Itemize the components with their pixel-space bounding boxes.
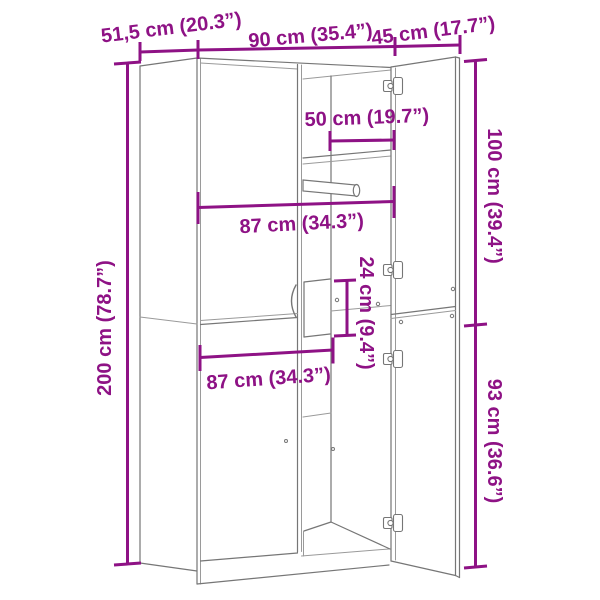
lower-shelf-edge	[303, 413, 331, 417]
dim-line-niche-height	[334, 280, 356, 336]
diagram-svg: 51,5 cm (20.3”) 90 cm (35.4”) 45 cm (17.…	[0, 0, 600, 600]
hinge-icon	[384, 351, 403, 368]
plinth-bottom-edge	[197, 565, 389, 584]
dimension-lines	[114, 35, 487, 568]
hinge-icon	[384, 262, 403, 279]
dim-label-rail-depth: 50 cm (19.7”)	[304, 105, 429, 131]
dim-label-upper-height: 100 cm (39.4”)	[483, 128, 505, 264]
dim-label-interior-width-upper: 87 cm (34.3”)	[239, 210, 364, 238]
dim-label-lower-height: 93 cm (36.6”)	[483, 379, 505, 504]
door-handle	[292, 285, 297, 317]
interior-top-edge	[303, 70, 391, 79]
right-doors-open	[391, 57, 460, 578]
top-gap-line	[201, 63, 298, 69]
dim-label-interior-width-lower: 87 cm (34.3”)	[206, 364, 332, 395]
dim-label-door-width: 45 cm (17.7”)	[370, 13, 496, 50]
wardrobe-dimension-diagram: 51,5 cm (20.3”) 90 cm (35.4”) 45 cm (17.…	[0, 0, 600, 600]
middle-niche	[304, 279, 330, 337]
plinth-top-edge	[302, 549, 390, 556]
top-shelf	[303, 150, 391, 164]
dim-line-rail-depth	[330, 130, 394, 151]
top-edge	[197, 58, 391, 68]
dim-line-total-height	[114, 62, 141, 565]
hinge-icon	[384, 78, 403, 95]
side-panel	[140, 58, 201, 584]
dim-label-niche-height: 24 cm (9.4”)	[355, 256, 377, 369]
wardrobe-outline	[140, 57, 460, 584]
dim-label-depth: 51,5 cm (20.3”)	[100, 9, 243, 48]
left-doors-closed	[201, 65, 302, 562]
interior-floor	[304, 522, 391, 556]
dimension-labels: 51,5 cm (20.3”) 90 cm (35.4”) 45 cm (17.…	[94, 9, 505, 504]
clothes-rail	[303, 180, 360, 197]
hinge-icon	[384, 515, 403, 532]
dim-label-total-height: 200 cm (78.7”)	[94, 260, 116, 396]
